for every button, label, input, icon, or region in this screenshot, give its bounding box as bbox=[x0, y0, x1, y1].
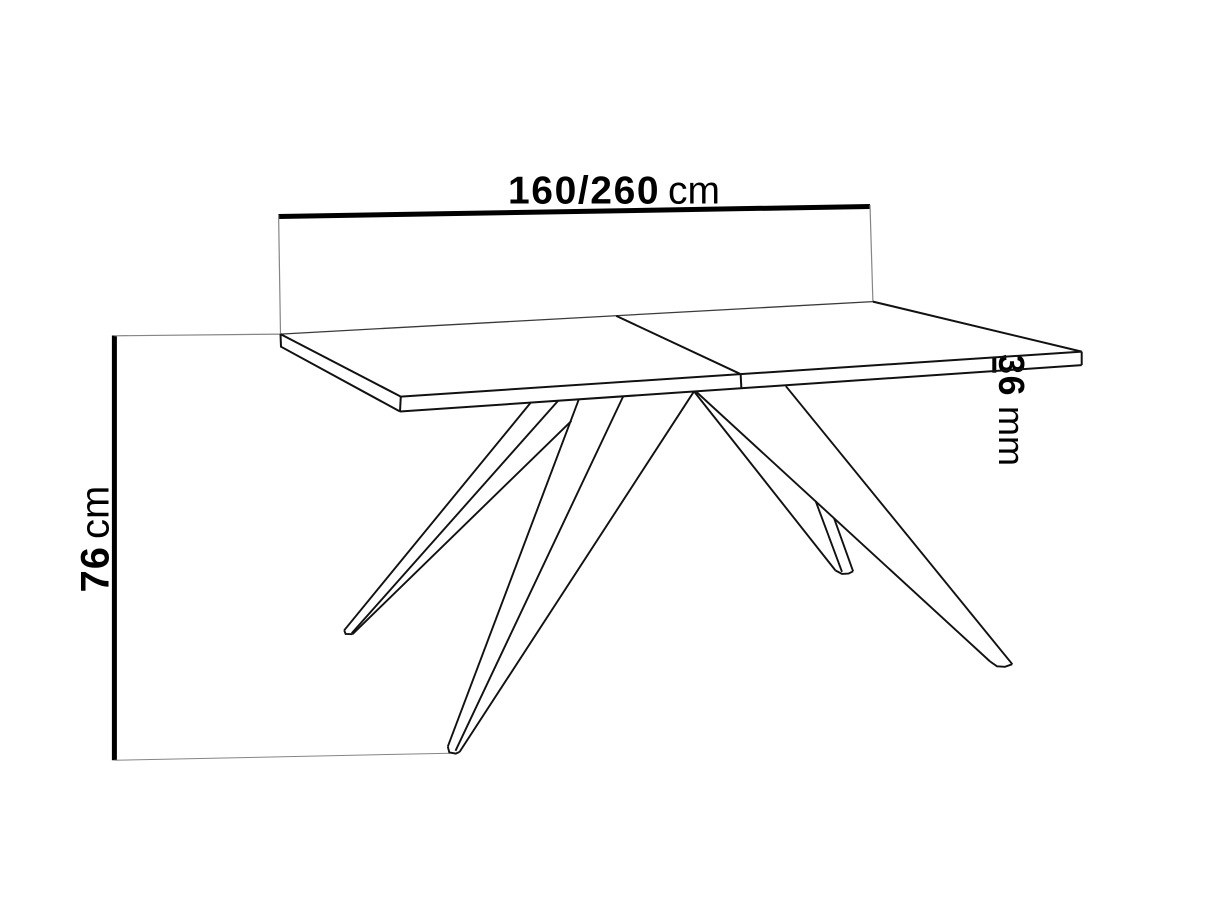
svg-text:160/260: 160/260 bbox=[508, 170, 660, 213]
svg-text:cm: cm bbox=[74, 486, 118, 539]
svg-text:36: 36 bbox=[991, 354, 1032, 397]
svg-text:76: 76 bbox=[74, 546, 118, 593]
svg-text:cm: cm bbox=[668, 170, 720, 213]
svg-text:mm: mm bbox=[991, 406, 1032, 466]
